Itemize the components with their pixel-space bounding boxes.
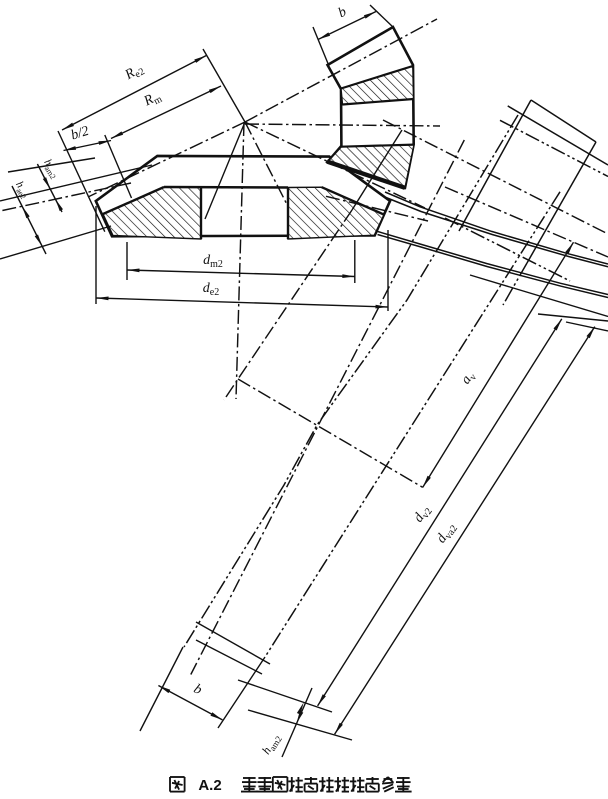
svg-text:A.2: A.2: [198, 777, 221, 794]
